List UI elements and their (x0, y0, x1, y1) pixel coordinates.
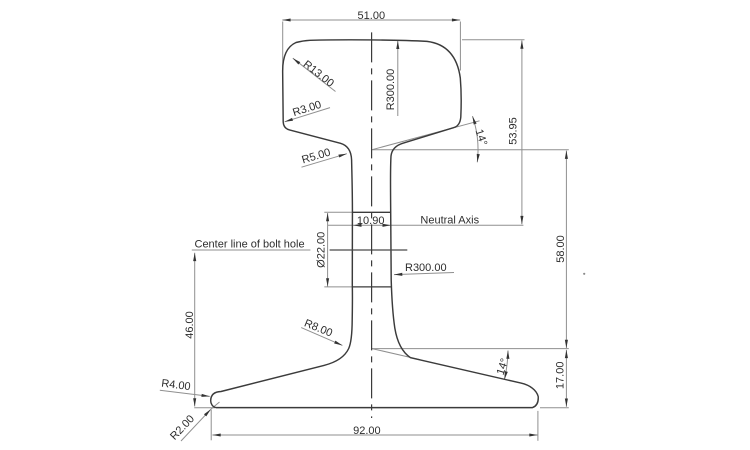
svg-text:10.90: 10.90 (357, 215, 385, 227)
svg-text:17.00: 17.00 (554, 362, 566, 390)
svg-text:R8.00: R8.00 (302, 317, 334, 339)
svg-text:R300.00: R300.00 (385, 69, 397, 111)
svg-text:R13.00: R13.00 (301, 58, 336, 89)
svg-text:14°: 14° (473, 128, 490, 148)
svg-text:Neutral Axis: Neutral Axis (420, 215, 479, 227)
svg-text:R2.00: R2.00 (168, 413, 197, 443)
svg-text:92.00: 92.00 (353, 425, 381, 437)
svg-text:58.00: 58.00 (555, 235, 567, 263)
svg-text:53.95: 53.95 (508, 117, 520, 145)
svg-text:14°: 14° (495, 357, 512, 377)
svg-text:Center line of bolt hole: Center line of bolt hole (195, 238, 305, 250)
svg-text:R3.00: R3.00 (291, 99, 323, 119)
svg-text:51.00: 51.00 (358, 10, 386, 22)
svg-text:R5.00: R5.00 (300, 147, 332, 167)
svg-text:R300.00: R300.00 (405, 262, 447, 274)
svg-text:Ø22.00: Ø22.00 (316, 232, 328, 268)
svg-text:46.00: 46.00 (184, 311, 196, 339)
